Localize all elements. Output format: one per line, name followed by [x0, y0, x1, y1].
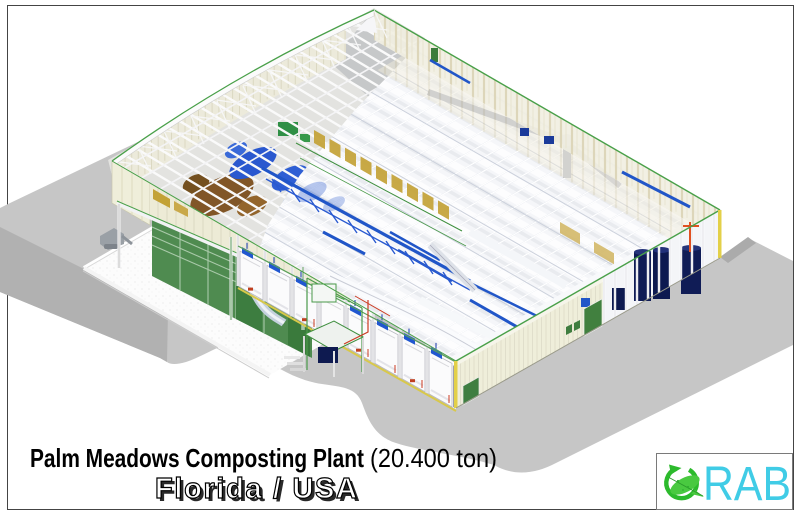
svg-text:Palm Meadows Composting Plant(: Palm Meadows Composting Plant(20.400 ton… — [30, 443, 497, 473]
svg-text:RAB: RAB — [703, 458, 791, 511]
svg-text:Florida / USA: Florida / USA — [155, 473, 357, 505]
